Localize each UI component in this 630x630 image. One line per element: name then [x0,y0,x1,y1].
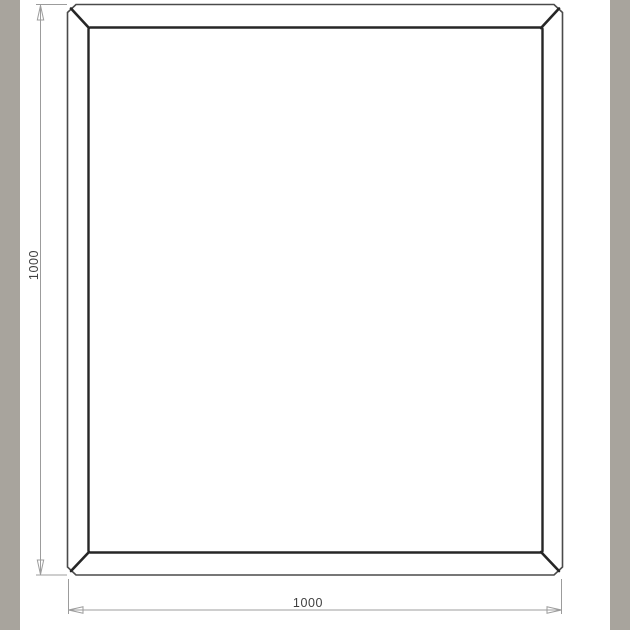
frame-drawing [68,5,563,576]
horizontal-dimension: 1000 [69,579,562,614]
drawing-viewport: 1000 1000 [0,0,630,630]
height-dimension-label: 1000 [27,250,41,280]
frame-outer-outline [68,5,563,576]
frame-inner-outline [89,28,543,553]
miter-joint-bottom-right [541,552,559,571]
miter-joint-top-right [541,9,559,29]
miter-joint-bottom-left [71,552,89,571]
vertical-dimension: 1000 [27,5,67,576]
miter-joint-top-left [71,9,89,29]
width-dimension-label: 1000 [293,596,323,610]
frame-technical-drawing: 1000 1000 [0,0,630,630]
